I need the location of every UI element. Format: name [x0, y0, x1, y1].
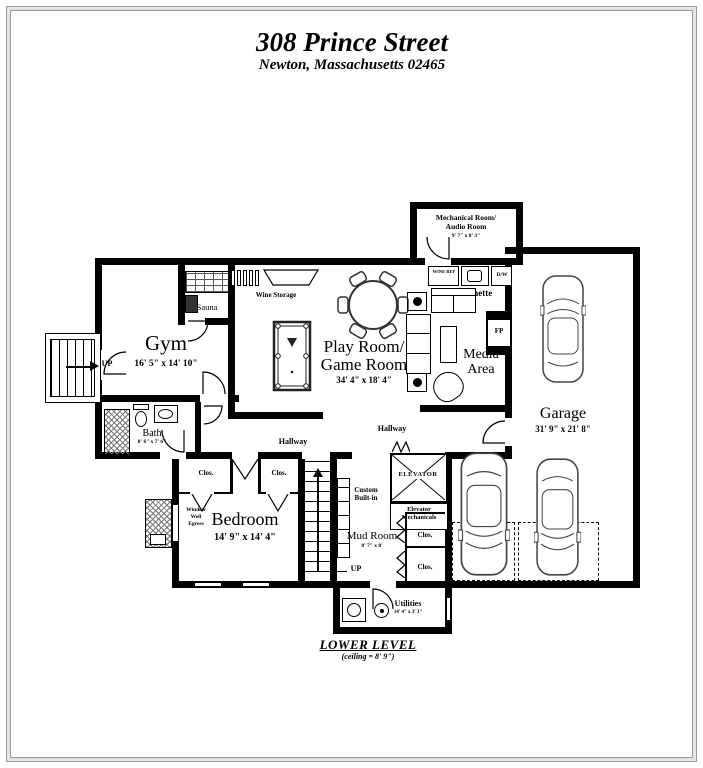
- toilet-bowl-icon: [135, 411, 147, 427]
- game-table-icon: [335, 267, 411, 343]
- door-opening: [505, 418, 512, 446]
- wine-rack-icon: [255, 270, 259, 286]
- door-opening: [302, 452, 330, 459]
- wall: [333, 627, 452, 634]
- gym-label: Gym: [145, 332, 187, 354]
- wall: [95, 258, 523, 265]
- armchair-icon: [427, 366, 468, 407]
- wine-rack-icon: [249, 270, 253, 286]
- fireplace: FP: [486, 311, 512, 355]
- closet-wall: [405, 512, 445, 514]
- page-title: 308 Prince Street: [256, 28, 448, 56]
- sauna-label: Sauna: [197, 303, 218, 312]
- window: [243, 582, 269, 587]
- kitchenette-sink: [461, 266, 489, 286]
- toilet-tank-icon: [133, 404, 149, 410]
- door-swing: [202, 371, 226, 395]
- closet-label: Clos.: [199, 470, 214, 477]
- bath-label: Bath: [143, 429, 162, 440]
- garage-dims: 31' 9" x 21' 8": [535, 425, 591, 434]
- wine-ref-label: WINE REF: [431, 270, 457, 275]
- sofa-cushion-line: [453, 295, 454, 312]
- ceiling-note: (ceiling = 8' 9"): [342, 653, 395, 661]
- wall: [420, 405, 512, 412]
- closet-label: Clos.: [418, 532, 433, 539]
- speaker-icon: [407, 373, 427, 392]
- custom-builtin-shelves: [337, 478, 350, 558]
- pool-table-icon: [272, 320, 312, 392]
- level-label: LOWER LEVEL: [320, 638, 417, 652]
- wall: [178, 265, 185, 325]
- bedroom-dims: 14' 9" x 14' 4": [214, 533, 276, 544]
- elevator-door-icon: [392, 441, 410, 453]
- wall: [298, 455, 305, 588]
- bath-window-well: [104, 409, 130, 455]
- coffee-table-icon: [440, 326, 457, 363]
- door-opening: [370, 581, 396, 588]
- up-label: UP: [351, 565, 362, 573]
- mechanical-room-label2: Audio Room: [446, 223, 487, 231]
- mud-room-label: Mud Room: [347, 531, 397, 543]
- door-opening: [200, 395, 228, 402]
- window-well-label2: Well: [191, 515, 202, 521]
- up-label: UP: [102, 360, 113, 368]
- double-door: [231, 459, 261, 481]
- floor-plan-page: 308 Prince Street Newton, Massachusetts …: [0, 0, 703, 768]
- closet-wall: [230, 459, 233, 494]
- closet-label: Clos.: [418, 564, 433, 571]
- wall: [195, 402, 201, 452]
- elevator-mechanicals-label2: Mechanicals: [402, 515, 437, 522]
- fireplace-bottom: [488, 346, 510, 353]
- page-subtitle: Newton, Massachusetts 02465: [259, 58, 445, 74]
- mechanical-room-label: Mechanical Room/: [436, 214, 496, 222]
- wall: [228, 265, 235, 412]
- wall: [445, 581, 640, 588]
- garage-label: Garage: [540, 406, 586, 423]
- wall: [228, 412, 323, 419]
- media-console-icon: [406, 314, 431, 374]
- wine-rack-icon: [237, 270, 241, 286]
- wall: [633, 247, 640, 588]
- elevator: ELEVATOR: [390, 453, 448, 503]
- stair-treads-icon: [50, 339, 95, 397]
- wine-storage-label: Wine Storage: [256, 292, 297, 299]
- hallway-label: Hallway: [378, 425, 406, 433]
- door-opening: [160, 452, 186, 459]
- window: [446, 598, 451, 620]
- wine-refrigerator: WINE REF: [428, 266, 459, 286]
- play-room-dims: 34' 4" x 18' 4": [336, 376, 392, 385]
- car-icon: [458, 446, 510, 577]
- pump-icon: [374, 603, 389, 618]
- custom-builtin-label2: Built-in: [355, 495, 378, 502]
- bedroom-label: Bedroom: [212, 510, 279, 529]
- hallway-label: Hallway: [279, 438, 307, 446]
- sink-oval: [158, 409, 173, 419]
- door-swing: [203, 405, 223, 425]
- pump-center: [380, 609, 384, 613]
- closet-wall: [258, 459, 261, 494]
- play-room-label: Play Room/: [324, 338, 405, 356]
- mud-room-dims: 8' 7" x 8': [361, 544, 382, 550]
- window: [195, 582, 221, 587]
- mechanical-room-dims: 9' 7" x 8' 3": [452, 234, 480, 240]
- utilities-label: Utilities: [395, 600, 422, 608]
- fireplace-label: FP: [495, 328, 504, 335]
- media-area-label2: Area: [467, 363, 494, 378]
- speaker-icon: [407, 292, 427, 311]
- window: [172, 505, 179, 541]
- dishwasher: D/W: [491, 266, 512, 286]
- stair-arrow-line: [66, 366, 92, 368]
- closet-wall: [405, 546, 445, 548]
- fireplace-top: [488, 313, 510, 320]
- stair-arrow-line: [317, 476, 319, 572]
- dw-label: D/W: [497, 273, 508, 279]
- bifold-door-icon: [396, 551, 406, 578]
- bath-dims: 8' 6" x 7' 6": [138, 440, 166, 446]
- arrow-right-icon: [90, 361, 99, 371]
- window-well-label3: Egress: [188, 522, 203, 528]
- arrow-up-icon: [313, 468, 323, 477]
- bath-sink-icon: [154, 405, 178, 423]
- car-icon: [540, 274, 586, 389]
- closet-door-opening: [190, 492, 214, 494]
- gym-dims: 16' 5" x 14' 10": [134, 360, 197, 370]
- utilities-dims: 14' 4" x 3' 3": [394, 610, 422, 615]
- wall: [330, 458, 337, 588]
- laundry-tub-icon: [342, 598, 366, 622]
- tub-basin: [347, 603, 361, 617]
- wine-counter-icon: [262, 269, 320, 287]
- sofa-icon: [431, 288, 476, 313]
- car-icon: [534, 452, 581, 577]
- closet-door-opening: [266, 492, 290, 494]
- door-swing: [426, 236, 450, 260]
- window-well-label: Window: [186, 508, 206, 514]
- bifold-door-icon: [396, 516, 406, 543]
- stair-arrow-line: [317, 571, 347, 573]
- wall: [410, 202, 417, 265]
- door-swing: [187, 320, 209, 342]
- wall: [410, 202, 523, 209]
- elevator-label: ELEVATOR: [396, 472, 439, 479]
- sauna-bench-icon: [185, 271, 229, 293]
- door-opening: [232, 452, 258, 459]
- closet-label: Clos.: [272, 470, 287, 477]
- window-seat-icon: [150, 534, 166, 545]
- wine-rack-icon: [231, 270, 235, 286]
- sink-basin-icon: [467, 270, 482, 282]
- play-room-label2: Game Room: [321, 356, 407, 374]
- door-swing: [482, 420, 506, 444]
- wine-rack-icon: [243, 270, 247, 286]
- wall: [505, 247, 640, 254]
